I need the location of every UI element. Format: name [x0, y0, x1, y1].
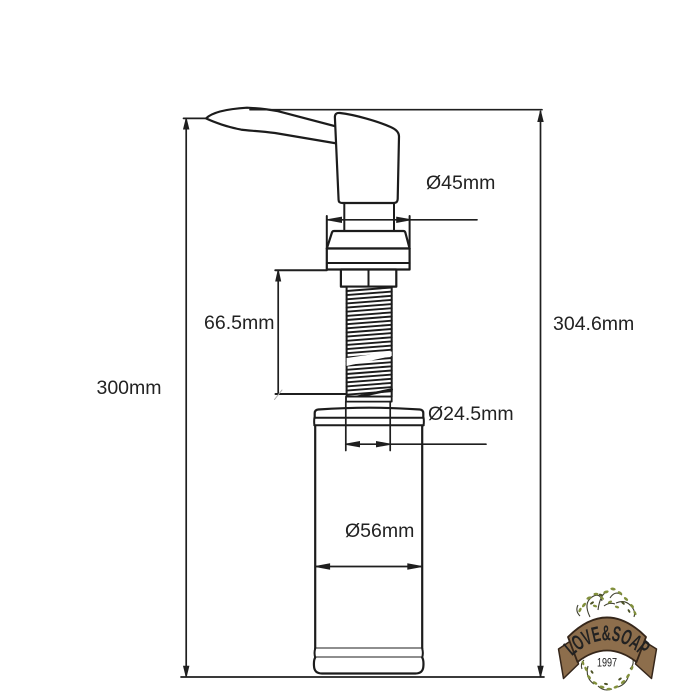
svg-text:LOVE&SOAP: LOVE&SOAP: [560, 621, 655, 660]
svg-text:66.5mm: 66.5mm: [204, 312, 274, 334]
svg-text:Ø45mm: Ø45mm: [426, 172, 495, 194]
svg-text:300mm: 300mm: [96, 377, 161, 399]
svg-text:1997: 1997: [597, 656, 617, 670]
svg-text:Ø24.5mm: Ø24.5mm: [428, 403, 514, 425]
svg-text:Ø56mm: Ø56mm: [345, 520, 414, 542]
svg-text:304.6mm: 304.6mm: [553, 313, 634, 335]
